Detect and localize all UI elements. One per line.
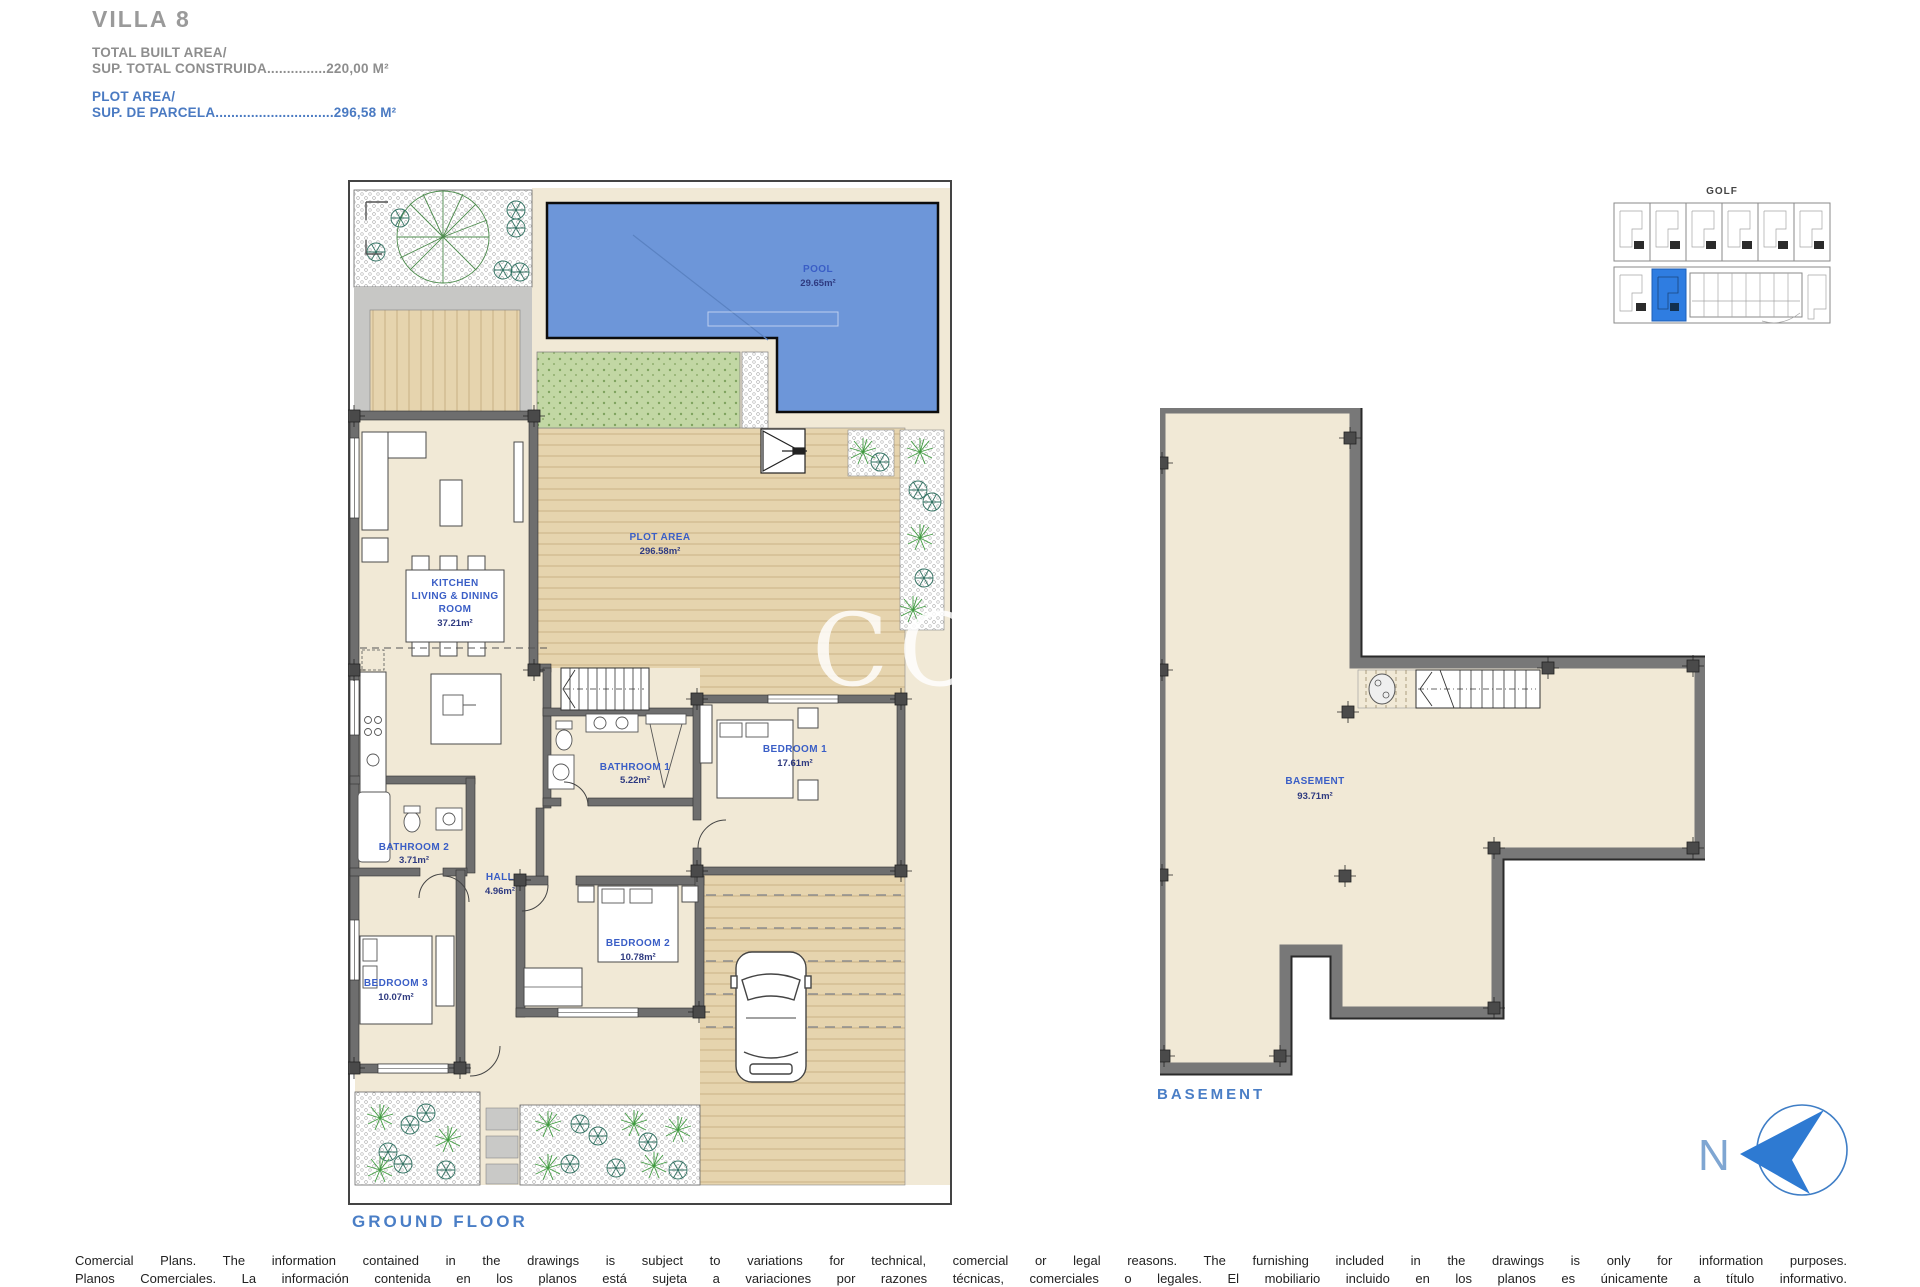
basement-caption: BASEMENT [1157,1086,1265,1103]
svg-text:HALL: HALL [486,872,514,883]
deck-steps [370,310,520,413]
north-label: N [1698,1131,1730,1180]
plot-area-label: PLOT AREA/ [92,89,396,105]
disclaimer: Comercial Plans. The information contain… [75,1252,1847,1287]
garden-top [354,190,532,287]
title-block: VILLA 8 TOTAL BUILT AREA/ SUP. TOTAL CON… [92,6,396,121]
svg-text:BEDROOM 3: BEDROOM 3 [364,978,428,989]
ground-floor-caption: GROUND FLOOR [352,1212,528,1232]
svg-text:ROOM: ROOM [439,604,472,615]
svg-text:BEDROOM 2: BEDROOM 2 [606,938,670,949]
svg-text:5.22m²: 5.22m² [620,775,650,786]
built-area-value: SUP. TOTAL CONSTRUIDA...............220,… [92,61,396,77]
built-area-label: TOTAL BUILT AREA/ [92,45,396,61]
kitchen-island [431,674,501,744]
plot-area-value: SUP. DE PARCELA.........................… [92,105,396,121]
stairs [561,668,649,710]
plot-area-plan-area: 296.58m² [640,546,681,557]
disclaimer-line-2: Planos Comerciales. La información conte… [75,1270,1847,1287]
kitchen-counter [360,672,386,804]
gate-icon [761,429,807,473]
svg-text:37.21m²: 37.21m² [437,618,472,629]
locator-row2 [1620,269,1826,323]
svg-text:KITCHEN: KITCHEN [431,578,478,589]
ground-floor-plan: POOL 29.65m² PLOT AREA 296.58m² [348,180,952,1205]
plot-area-plan-label: PLOT AREA [629,532,690,543]
svg-text:10.78m²: 10.78m² [620,952,655,963]
svg-text:LIVING & DINING: LIVING & DINING [411,591,498,602]
basement-room-label: BASEMENT [1285,776,1344,787]
basement-plan: BASEMENT 93.71m² [1160,408,1705,1078]
north-compass: N [1690,1088,1875,1248]
page-title: VILLA 8 [92,6,396,33]
pool-area: 29.65m² [800,278,835,289]
locator-title: GOLF [1706,186,1738,197]
svg-text:3.71m²: 3.71m² [399,855,429,866]
svg-text:4.96m²: 4.96m² [485,886,515,897]
svg-text:BEDROOM 1: BEDROOM 1 [763,744,827,755]
basement-room-area: 93.71m² [1297,791,1332,802]
svg-text:17.61m²: 17.61m² [777,758,812,769]
svg-text:10.07m²: 10.07m² [378,992,413,1003]
basement-stairs [1358,670,1540,708]
pool-label: POOL [803,264,833,275]
disclaimer-line-1: Comercial Plans. The information contain… [75,1252,1847,1270]
north-arrow-icon [1740,1110,1824,1194]
lawn [537,352,740,428]
garden-bottom [355,1092,700,1185]
svg-text:BATHROOM 2: BATHROOM 2 [379,842,450,853]
site-locator: GOLF [1612,183,1832,325]
car [731,952,811,1082]
svg-text:BATHROOM 1: BATHROOM 1 [600,762,671,773]
